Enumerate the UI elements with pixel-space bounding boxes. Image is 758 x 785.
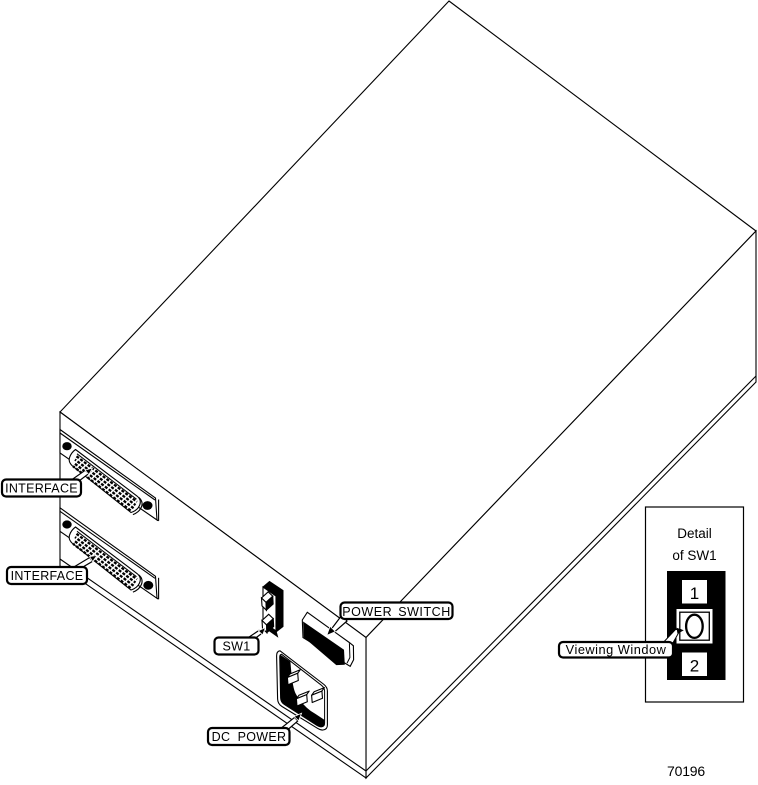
svg-text:SW1: SW1 (223, 640, 251, 654)
svg-text:INTERFACE: INTERFACE (11, 569, 84, 583)
svg-text:INTERFACE: INTERFACE (5, 482, 78, 496)
svg-text:1: 1 (690, 584, 699, 603)
svg-text:2: 2 (690, 657, 699, 676)
svg-text:DC POWER: DC POWER (212, 730, 287, 744)
svg-text:POWER SWITCH: POWER SWITCH (342, 605, 451, 619)
svg-text:Detail: Detail (677, 526, 712, 541)
svg-text:Viewing Window: Viewing Window (566, 642, 667, 657)
svg-text:70196: 70196 (667, 763, 705, 779)
svg-text:of SW1: of SW1 (672, 548, 716, 563)
